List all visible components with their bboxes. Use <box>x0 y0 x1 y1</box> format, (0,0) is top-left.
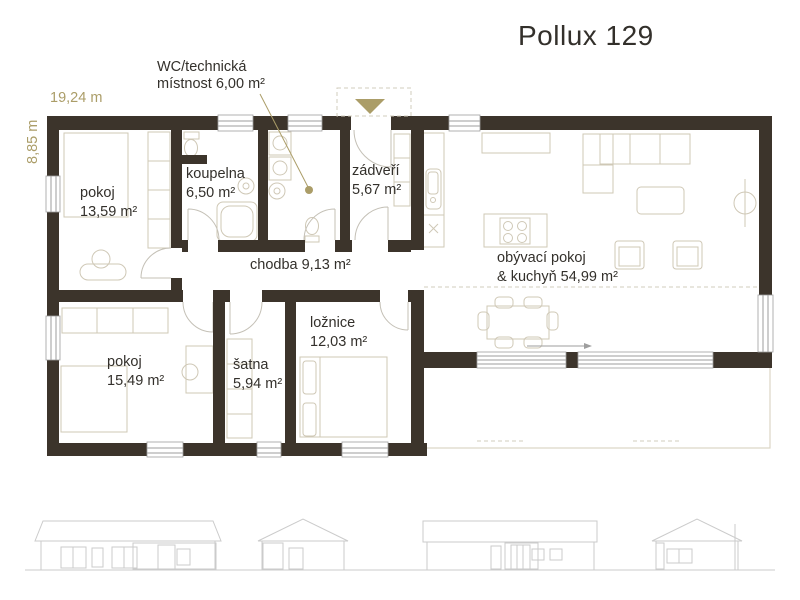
room-label-loznice: ložnice 12,03 m² <box>310 314 367 352</box>
elevation-drawings <box>25 519 775 570</box>
furniture <box>61 132 756 438</box>
entrance-marker-icon <box>355 99 385 114</box>
sliding-door-arrowhead <box>584 343 592 349</box>
width-dimension-label: 19,24 m <box>50 90 102 106</box>
room-label-obyvaci-pokoj: obývací pokoj & kuchyň 54,99 m² <box>497 249 618 287</box>
wc-annotation: WC/technická místnost 6,00 m² <box>157 59 265 94</box>
terrace <box>424 368 770 448</box>
wc-annotation-line2: místnost 6,00 m² <box>157 76 265 93</box>
floor-plan-drawing <box>0 0 800 600</box>
height-dimension-label: 8,85 m <box>25 120 41 164</box>
floor-plan-page: Pollux 129 WC/technická místnost 6,00 m²… <box>0 0 800 600</box>
leader-dot <box>305 186 313 194</box>
room-label-pokoj1: pokoj 13,59 m² <box>80 184 137 222</box>
room-label-koupelna: koupelna 6,50 m² <box>186 165 245 203</box>
room-label-pokoj2: pokoj 15,49 m² <box>107 353 164 391</box>
room-label-chodba: chodba 9,13 m² <box>250 256 351 275</box>
wc-annotation-line1: WC/technická <box>157 59 265 76</box>
plan-title: Pollux 129 <box>518 20 654 52</box>
room-label-zadveri: zádveří 5,67 m² <box>352 162 401 200</box>
room-label-satna: šatna 5,94 m² <box>233 356 282 394</box>
